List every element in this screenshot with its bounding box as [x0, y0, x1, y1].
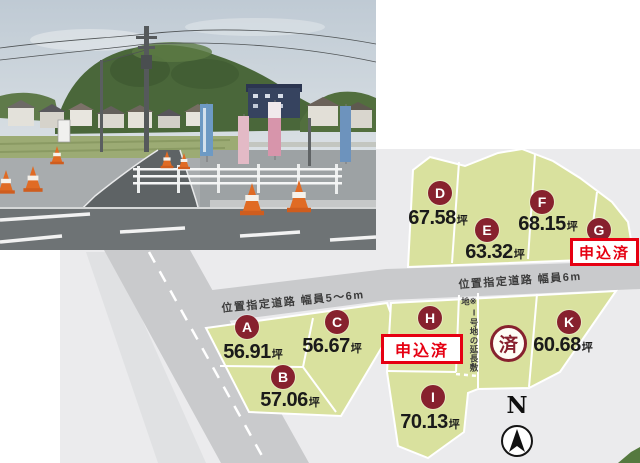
plot-pin-h: H [418, 306, 442, 330]
sold-mark: 済 [490, 325, 527, 362]
plot-pin-a: A [235, 315, 259, 339]
plot-pin-d: D [428, 181, 452, 205]
utility-pole-3 [308, 118, 311, 166]
plot-pin-f: F [530, 190, 554, 214]
applied-badge-g: 申込済 [570, 238, 639, 266]
applied-badge-h: 申込済 [381, 334, 463, 364]
front-road [0, 208, 376, 250]
plot-area-k: 60.68坪 [533, 334, 593, 359]
plot-pin-i: I [421, 385, 445, 409]
compass-north-label: N [506, 394, 527, 417]
plot-pin-b: B [271, 365, 295, 389]
plot-area-i: 70.13坪 [400, 411, 460, 436]
cloud [30, 29, 150, 51]
plot-area-c: 56.67坪 [302, 335, 362, 360]
plot-area-f: 68.15坪 [518, 213, 578, 238]
site-photo [0, 0, 376, 250]
plot-pin-k: K [557, 310, 581, 334]
plot-pin-e: E [475, 218, 499, 242]
plot-area-d: 67.58坪 [408, 207, 468, 232]
plot-area-e: 63.32坪 [465, 241, 525, 266]
cloud [185, 18, 325, 36]
hill-shade [171, 59, 239, 89]
flag-strip-note: ※I号地の延長敷地 [461, 297, 478, 379]
land-sale-flyer: 位置指定道路 幅員5〜6m 位置指定道路 幅員6m A B C D E F G … [0, 0, 640, 463]
plot-pin-c: C [325, 310, 349, 334]
utility-pole-2 [100, 60, 103, 152]
plot-area-a: 56.91坪 [223, 341, 283, 366]
plot-area-b: 57.06坪 [260, 389, 320, 414]
